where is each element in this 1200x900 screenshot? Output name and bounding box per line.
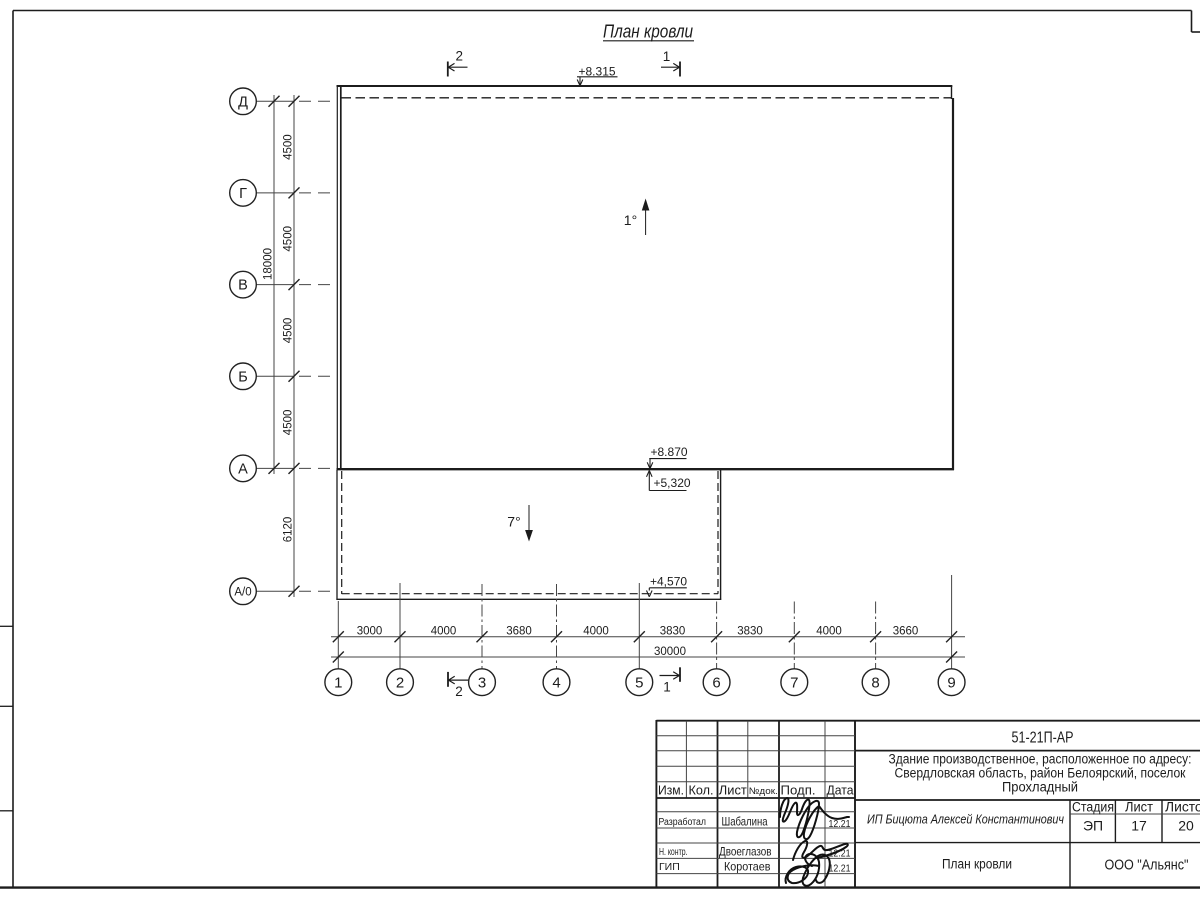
svg-text:Дата: Дата [827, 784, 854, 798]
svg-text:30000: 30000 [654, 646, 686, 658]
svg-text:2: 2 [456, 49, 464, 64]
svg-text:План кровли: План кровли [603, 22, 693, 42]
svg-text:Прохладный: Прохладный [1002, 780, 1078, 795]
svg-text:Стадия: Стадия [1072, 800, 1114, 815]
svg-text:51-21П-АР: 51-21П-АР [1012, 730, 1074, 747]
svg-text:4000: 4000 [431, 625, 457, 637]
svg-text:3660: 3660 [893, 625, 919, 637]
svg-text:А/0: А/0 [234, 587, 251, 599]
svg-text:+5,320: +5,320 [654, 476, 691, 490]
svg-text:12.21: 12.21 [829, 818, 851, 830]
svg-text:6120: 6120 [283, 517, 295, 543]
svg-text:3000: 3000 [357, 625, 383, 637]
svg-text:4500: 4500 [283, 318, 295, 344]
svg-text:20: 20 [1178, 818, 1194, 834]
svg-text:2: 2 [455, 684, 463, 699]
svg-text:Б: Б [238, 369, 248, 385]
svg-text:Коротаев: Коротаев [724, 860, 771, 874]
svg-text:2: 2 [396, 675, 404, 692]
svg-text:№док.: №док. [749, 786, 778, 797]
svg-text:План кровли: План кровли [942, 857, 1012, 872]
svg-text:Листов: Листов [1165, 800, 1200, 815]
svg-text:12.21: 12.21 [829, 863, 851, 875]
svg-text:7: 7 [790, 675, 798, 692]
svg-text:1: 1 [663, 680, 671, 695]
svg-text:17: 17 [1131, 818, 1147, 834]
svg-text:18000: 18000 [263, 248, 275, 280]
svg-text:ООО "Альянс": ООО "Альянс" [1105, 857, 1189, 874]
svg-text:9: 9 [947, 675, 955, 692]
svg-text:4500: 4500 [283, 134, 295, 160]
svg-text:А: А [238, 461, 248, 477]
svg-text:6: 6 [712, 675, 720, 692]
svg-text:Кол.: Кол. [689, 784, 714, 798]
svg-text:5: 5 [635, 675, 643, 692]
svg-text:Лист: Лист [1125, 800, 1153, 815]
svg-text:+8.315: +8.315 [579, 64, 616, 78]
svg-text:В: В [238, 278, 248, 294]
svg-text:Н. контр.: Н. контр. [659, 847, 688, 858]
svg-text:ИП Бицюта Алексей Константинов: ИП Бицюта Алексей Константинович [867, 812, 1064, 827]
svg-text:ЭП: ЭП [1083, 818, 1103, 834]
svg-text:3830: 3830 [660, 625, 686, 637]
svg-text:ГИП: ГИП [659, 861, 680, 873]
svg-text:3: 3 [478, 675, 486, 692]
svg-text:1: 1 [334, 675, 342, 692]
svg-text:Свердловская область, район Бе: Свердловская область, район Белоярский, … [895, 766, 1186, 781]
svg-text:3680: 3680 [506, 625, 532, 637]
svg-text:Шабалина: Шабалина [722, 814, 768, 828]
svg-text:1: 1 [663, 49, 671, 64]
svg-text:Изм.: Изм. [658, 784, 684, 798]
svg-text:4500: 4500 [283, 226, 295, 252]
svg-text:+8.870: +8.870 [651, 445, 688, 459]
svg-text:8: 8 [871, 675, 879, 692]
svg-text:4000: 4000 [583, 625, 609, 637]
svg-text:4500: 4500 [283, 410, 295, 436]
svg-text:1°: 1° [624, 212, 637, 228]
svg-text:3830: 3830 [737, 625, 763, 637]
svg-text:Здание производственное, распо: Здание производственное, расположенное п… [889, 752, 1192, 767]
svg-text:4000: 4000 [816, 625, 842, 637]
svg-text:4: 4 [552, 675, 560, 692]
svg-text:Лист: Лист [719, 784, 747, 798]
svg-text:Двоеглазов: Двоеглазов [719, 845, 772, 859]
svg-text:Подп.: Подп. [781, 784, 816, 798]
svg-text:+4,570: +4,570 [650, 575, 687, 589]
svg-text:7°: 7° [507, 514, 520, 530]
svg-text:Разработал: Разработал [659, 816, 707, 828]
svg-text:Д: Д [238, 94, 248, 110]
svg-text:Г: Г [239, 186, 247, 202]
